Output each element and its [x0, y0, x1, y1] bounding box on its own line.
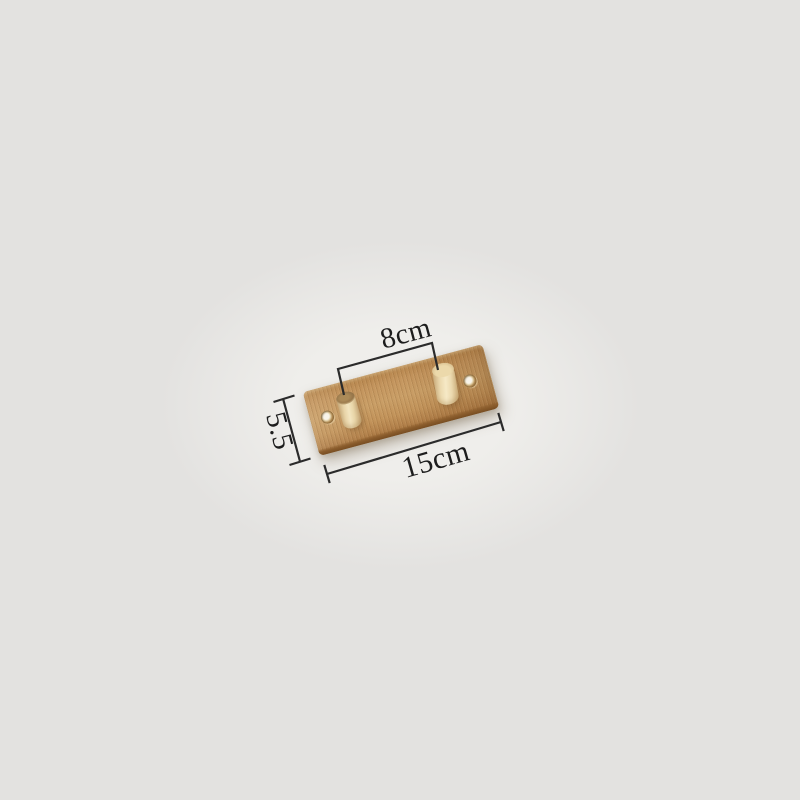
screw-hole-left [319, 409, 335, 425]
screw-hole-right [462, 373, 478, 389]
product-photo: 8cm 15cm 5.5 [0, 0, 800, 800]
